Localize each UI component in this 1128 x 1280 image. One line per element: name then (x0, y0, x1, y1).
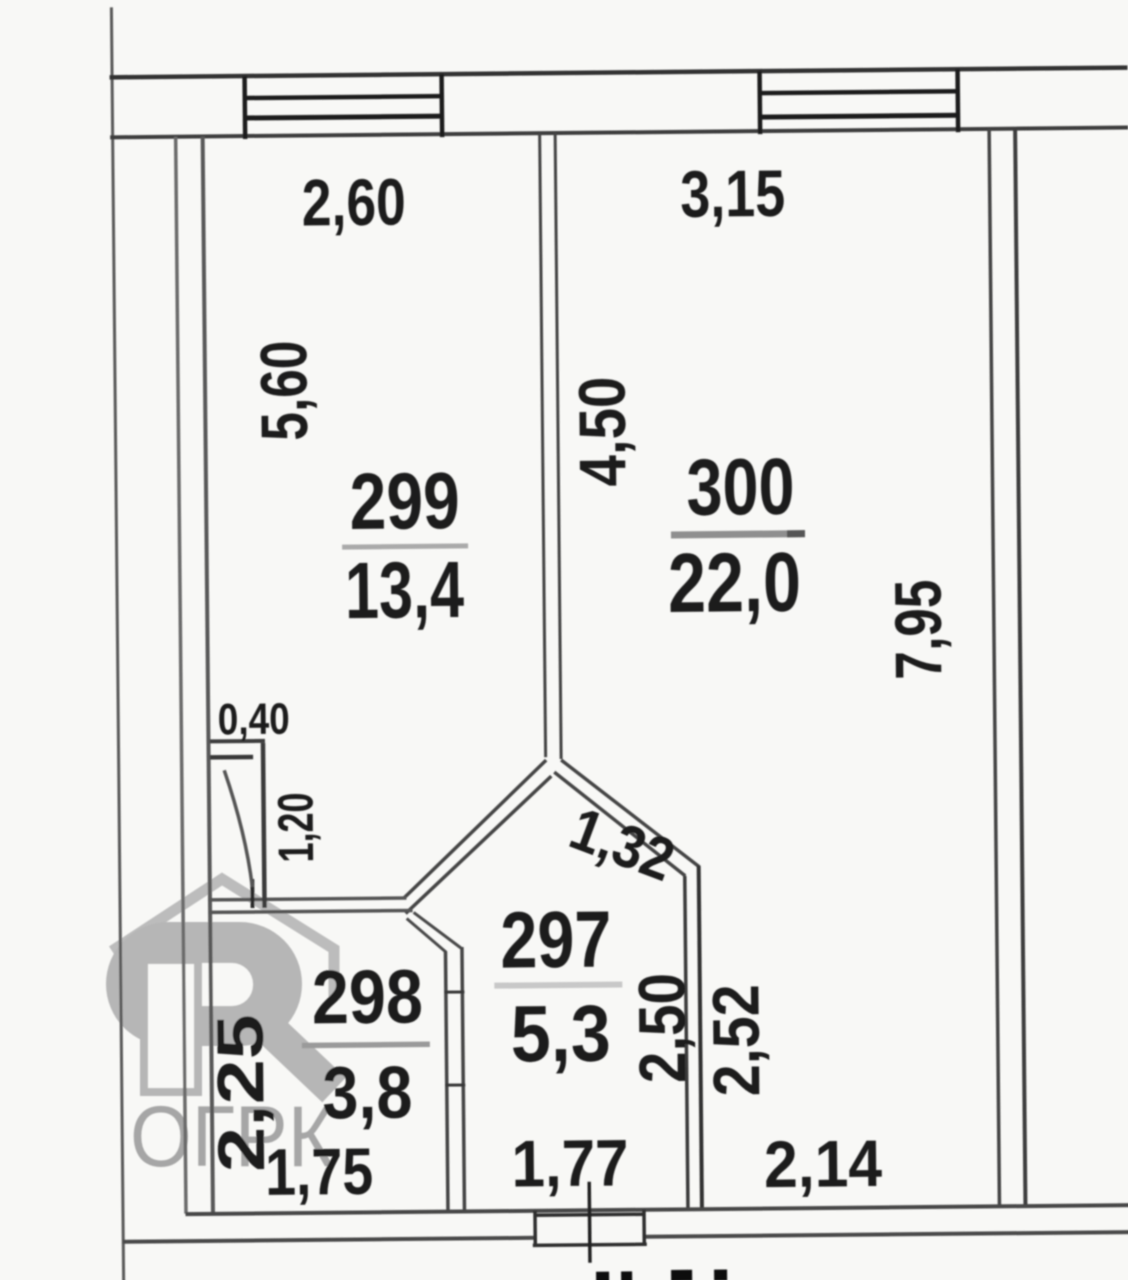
svg-text:1,20: 1,20 (267, 792, 324, 863)
svg-text:1,32: 1,32 (561, 795, 683, 894)
svg-text:2,60: 2,60 (301, 165, 406, 240)
svg-text:5,3: 5,3 (510, 989, 611, 1079)
svg-text:1,77: 1,77 (511, 1125, 629, 1200)
svg-text:298: 298 (312, 954, 424, 1040)
svg-text:2,52: 2,52 (698, 984, 773, 1097)
svg-text:7,95: 7,95 (880, 579, 955, 680)
svg-text:299: 299 (349, 456, 460, 546)
svg-text:3,8: 3,8 (322, 1050, 413, 1134)
svg-text:300: 300 (686, 442, 795, 532)
svg-text:0,40: 0,40 (218, 695, 290, 745)
svg-text:5,60: 5,60 (246, 340, 321, 441)
svg-text:13,4: 13,4 (345, 545, 465, 635)
svg-text:297: 297 (500, 895, 612, 985)
svg-text:4,50: 4,50 (564, 376, 639, 487)
svg-text:2,50: 2,50 (624, 973, 699, 1084)
svg-text:1,75: 1,75 (265, 1134, 374, 1209)
svg-text:22,0: 22,0 (668, 535, 802, 630)
svg-text:3,15: 3,15 (680, 156, 786, 231)
svg-text:2,14: 2,14 (764, 1126, 883, 1201)
